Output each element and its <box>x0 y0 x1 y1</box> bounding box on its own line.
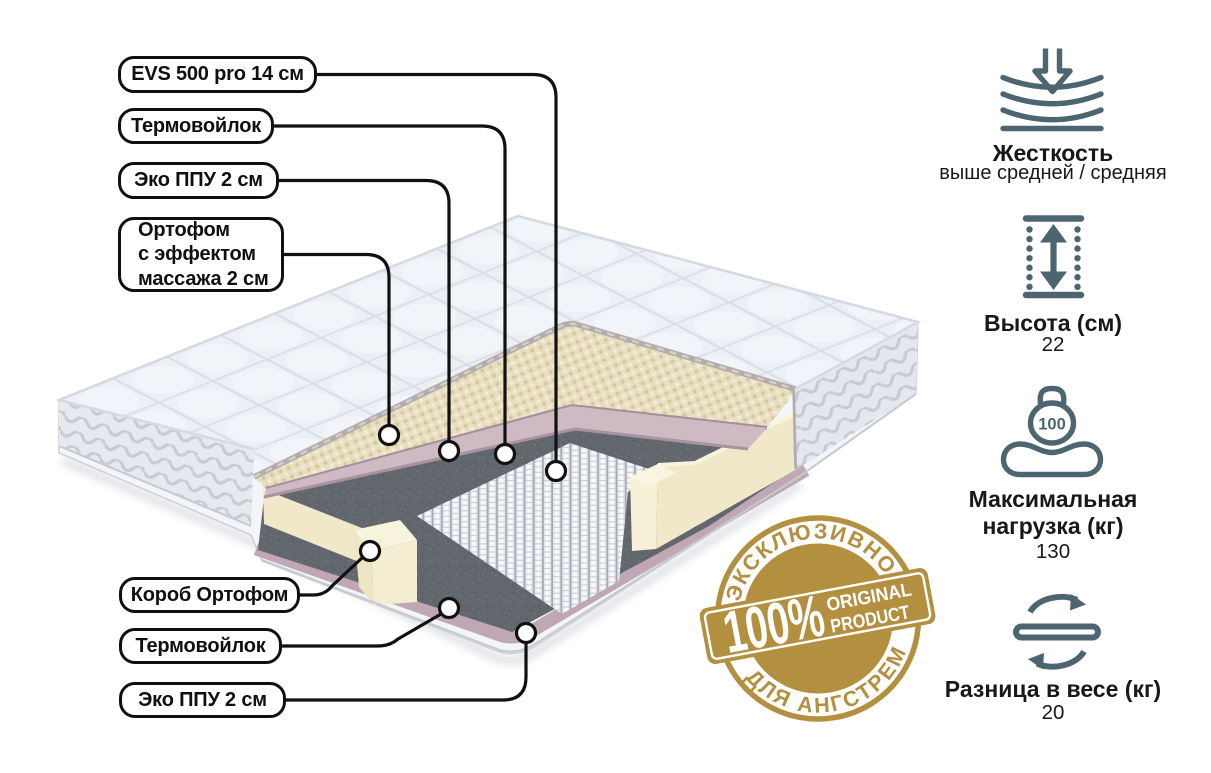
svg-text:100: 100 <box>1038 416 1066 434</box>
